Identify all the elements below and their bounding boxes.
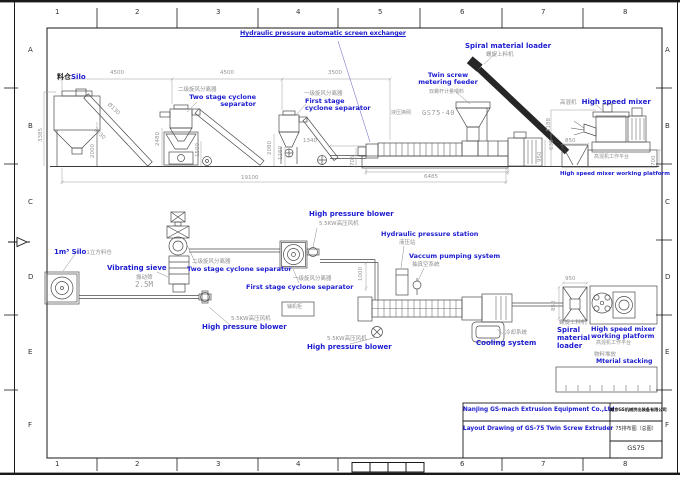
dim-850-bottom: 850 (551, 301, 557, 312)
label-first-stage-line2: cyclone separator (305, 105, 371, 112)
dim-2480: 2480 (155, 132, 161, 146)
label-sieve-height: 2.5M (135, 281, 153, 289)
label-silo-en: Silo (71, 73, 86, 81)
label-silo-1m3-en: 1m³ Silo (54, 248, 86, 256)
metering-feeder-elevation (456, 102, 490, 141)
zone-row-right-a: A (665, 46, 670, 54)
scale-bar (352, 463, 424, 473)
dim-950-bottom: 950 (565, 276, 576, 282)
hydraulic-station-plan (396, 269, 408, 295)
zone-col-bottom-4: 4 (296, 460, 300, 468)
zone-col-top-1: 1 (55, 8, 59, 16)
label-hydraulic-cn: 液压站 (399, 240, 416, 246)
title-block-company-cn: 南京GS机械挤出装备有限公司 (610, 408, 662, 413)
label-platform-en-top: High speed mixer working platform (560, 171, 670, 177)
title-block-drawing-title-cn: 75排布图（总图） (610, 427, 662, 433)
label-cooling-en: Cooling system (476, 340, 536, 348)
label-blower-bottom-en: High pressure blower (307, 344, 392, 352)
dim-1500: 1500 (195, 143, 201, 157)
label-blower-top-en: High pressure blower (309, 211, 394, 219)
zone-row-left-e: E (28, 348, 32, 356)
label-platform-en-bottom: High speed mixer working platform (591, 326, 655, 341)
label-mixer: 高混机 High speed mixer (560, 90, 651, 108)
zone-row-left-a: A (28, 46, 33, 54)
zone-col-bottom-3: 3 (216, 460, 220, 468)
label-first-stage-cn-bottom: 一级旋风分离器 (293, 276, 332, 282)
label-silo: 料仓Silo (57, 65, 86, 83)
zone-row-left-f: F (28, 421, 32, 429)
vibrating-sieve-plan (167, 212, 189, 292)
dim-3385: 3385 (38, 128, 44, 142)
label-silo-cn: 料仓 (57, 73, 71, 81)
zone-row-left-b: B (28, 122, 33, 130)
label-extruder-model: GS75-40 (422, 110, 455, 118)
label-cabinet-cn: 辅机柜 (287, 305, 302, 311)
zone-col-bottom-8: 8 (623, 460, 627, 468)
title-block-drawing-title-en: Layout Drawing of GS-75 Twin Screw Extru… (463, 426, 610, 432)
label-feeder-cn: 双螺杆计量喂料 (429, 90, 464, 96)
label-two-stage-en: Two stage cyclone separator (156, 94, 256, 109)
label-two-stage-line2: separator (156, 101, 256, 108)
label-screen-exchanger-title: Hydraulic pressure automatic screen exch… (240, 30, 406, 37)
dim-705: 705 (350, 156, 356, 167)
dim-2080: 2080 (267, 141, 273, 155)
vacuum-gauge-plan (413, 278, 421, 295)
zone-col-top-7: 7 (541, 8, 545, 16)
label-feeder-en: Twin screw metering feeder (416, 72, 480, 87)
label-blower-top-kw: 5.5KW高压风机 (319, 221, 359, 227)
bottom-view-dimensions (365, 262, 589, 322)
label-blower-left-en: High pressure blower (202, 324, 287, 332)
dim-950-top: 950 (537, 152, 543, 163)
label-loader-line2: material (557, 334, 590, 342)
zone-col-top-8: 8 (623, 8, 627, 16)
dim-3500: 3500 (328, 70, 342, 76)
label-two-stage-en-bottom: Two stage cyclone separator (187, 266, 292, 273)
extruder-elevation (358, 132, 542, 168)
zone-row-right-c: C (665, 198, 670, 206)
label-blower-bottom-kw: 5.5KW高压风机 (327, 336, 367, 342)
label-platform-cn-top: 高混机工作平台 (594, 155, 629, 161)
zone-col-bottom-6: 6 (460, 460, 464, 468)
zone-row-right-d: D (665, 273, 670, 281)
dim-638: 638 (549, 140, 555, 151)
dim-3188: 3188 (546, 118, 552, 132)
zone-row-left-c: C (28, 198, 33, 206)
silo-1m3-plan (45, 272, 79, 304)
label-mixer-cn: 高混机 (560, 100, 577, 106)
label-loader-en-bottom: Spiral material loader (557, 326, 590, 350)
dim-2000: 2000 (90, 144, 96, 158)
blower-elevation-2 (318, 156, 367, 165)
zone-col-bottom-7: 7 (541, 460, 545, 468)
label-stacking-en: Mterial stacking (596, 359, 653, 366)
zone-col-top-5: 5 (378, 8, 382, 16)
zone-col-top-6: 6 (460, 8, 464, 16)
zone-col-bottom-2: 2 (135, 460, 139, 468)
label-vacuum-en: Vaccum pumping system (409, 253, 500, 260)
zone-row-right-b: B (665, 122, 670, 130)
zone-col-top-3: 3 (216, 8, 220, 16)
dim-1340: 1340 (303, 138, 317, 144)
extruder-plan (358, 294, 512, 338)
dim-700: 700 (651, 156, 657, 167)
label-sieve-en: Vibrating sieve (107, 265, 167, 273)
zone-row-right-f: F (665, 421, 669, 429)
label-feeder-line2: metering feeder (416, 79, 480, 86)
dim-4500-b: 4500 (220, 70, 234, 76)
dim-1160: 1160 (278, 146, 284, 160)
title-block-drawing-number: GS75 (610, 445, 662, 452)
label-screen-changer-cn: 液压换网 (391, 111, 411, 117)
label-vacuum-cn: 抽真空系统 (412, 262, 440, 268)
label-silo-1m3: 1m³ Silo1立方料仓 (54, 240, 112, 258)
label-hydraulic-en: Hydraulic pressure station (381, 231, 478, 238)
blower-elevation-1 (203, 157, 212, 166)
zone-row-right-e: E (665, 348, 669, 356)
spiral-loader-plan (563, 287, 587, 321)
bottom-view-machines (45, 212, 657, 392)
label-blower-left-kw: 5.5KW高压风机 (231, 316, 271, 322)
first-stage-cyclone-plan (280, 241, 307, 268)
material-stacking-area (556, 367, 657, 392)
label-first-stage-en: First stage cyclone separator (305, 98, 371, 113)
title-block-company-en: Nanjing GS-mach Extrusion Equipment Co.,… (463, 407, 610, 413)
blower-plan-left (199, 291, 211, 303)
dim-6485: 6485 (424, 174, 438, 180)
label-loader-line3: loader (557, 342, 590, 350)
two-stage-cyclone-elevation (160, 105, 200, 165)
spiral-loader-elevation (467, 56, 588, 167)
zone-col-bottom-1: 1 (55, 460, 59, 468)
label-loader-en-top: Spiral material loader (465, 43, 551, 51)
label-platform-cn-bottom: 高混机工作平台 (596, 341, 631, 347)
label-cooling-cn: 冷却系统 (505, 330, 527, 336)
label-loader-cn-top: 螺旋上料机 (486, 52, 514, 58)
dim-4500-a: 4500 (110, 70, 124, 76)
center-mark-triangle (8, 238, 30, 247)
mixer-platform-plan (590, 286, 657, 324)
dim-19100: 19100 (241, 175, 259, 181)
zone-col-top-4: 4 (296, 8, 300, 16)
dim-1000: 1000 (358, 267, 364, 281)
dim-850-top: 850 (565, 138, 576, 144)
cad-drawing-sheet: 1 2 3 4 5 6 7 8 1 2 3 4 6 7 8 A B C D E … (0, 0, 680, 480)
label-mixer-en: High speed mixer (582, 98, 651, 106)
zone-col-top-2: 2 (135, 8, 139, 16)
label-silo-1m3-cn: 1立方料仓 (86, 250, 112, 256)
zone-row-left-d: D (28, 273, 33, 281)
blower-plan-top (307, 248, 319, 257)
label-first-stage-en-bottom: First stage cyclone separator (246, 284, 353, 291)
label-loader-line1: Spiral (557, 326, 590, 334)
